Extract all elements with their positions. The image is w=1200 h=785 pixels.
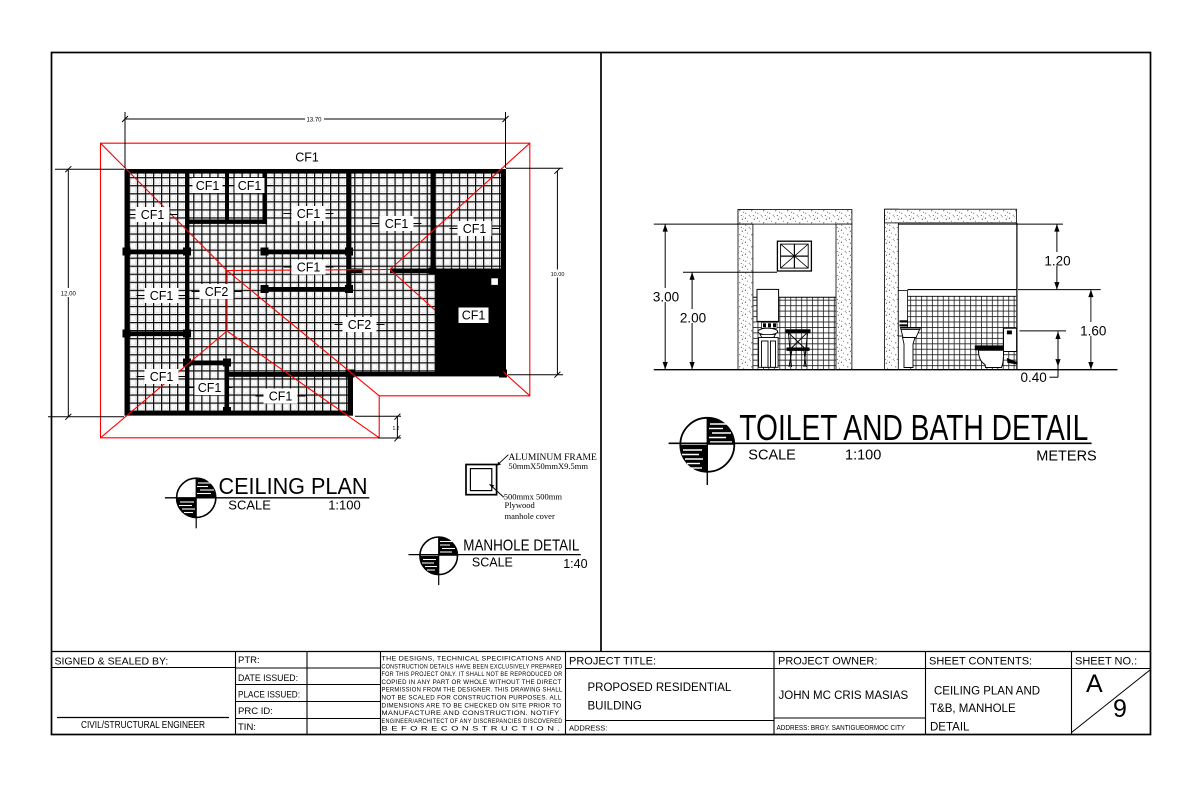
svg-text:manhole cover: manhole cover [505,511,555,521]
svg-text:CF1: CF1 [385,217,409,231]
svg-text:PTR:: PTR: [238,655,260,666]
svg-text:Plywood: Plywood [505,500,536,510]
svg-text:CF1: CF1 [150,370,174,384]
svg-text:PLACE ISSUED:: PLACE ISSUED: [238,690,300,701]
svg-text:SHEET NO.:: SHEET NO.: [1075,656,1137,668]
svg-text:9: 9 [1113,695,1127,723]
svg-text:CONSTRUCTION DETAILS HAVE BEEN: CONSTRUCTION DETAILS HAVE BEEN EXCLUSIVE… [382,663,563,670]
svg-text:CIVIL/STRUCTURAL ENGINEER: CIVIL/STRUCTURAL ENGINEER [81,720,205,731]
svg-text:DATE ISSUED:: DATE ISSUED: [238,673,298,684]
svg-text:A: A [1086,670,1103,698]
svg-text:CF2: CF2 [205,285,229,299]
svg-text:CEILING PLAN AND: CEILING PLAN AND [934,686,1040,698]
svg-text:1:40: 1:40 [563,557,587,571]
svg-text:10.00: 10.00 [551,272,565,278]
svg-text:PROJECT OWNER:: PROJECT OWNER: [778,656,877,668]
svg-text:CF1: CF1 [150,289,174,303]
svg-text:ADDRESS: BRGY. SANTIGUEORMOC C: ADDRESS: BRGY. SANTIGUEORMOC CITY [777,723,906,732]
svg-text:MANHOLE DETAIL: MANHOLE DETAIL [463,538,579,555]
svg-text:BUILDING: BUILDING [588,701,642,713]
svg-text:TOILET AND BATH DETAIL: TOILET AND BATH DETAIL [739,407,1088,448]
svg-text:MANUFACTURE AND CONSTRUCTION.: MANUFACTURE AND CONSTRUCTION. NOTIFY [382,710,560,717]
svg-text:1.2: 1.2 [393,426,400,432]
svg-text:COPIED IN ANY PART OR WHOLE WI: COPIED IN ANY PART OR WHOLE WITHOUT THE … [382,679,562,686]
svg-text:PROPOSED RESIDENTIAL: PROPOSED RESIDENTIAL [588,682,732,694]
svg-text:ENGINEER/ARCHITECT OF ANY DISC: ENGINEER/ARCHITECT OF ANY DISCREPANCIES … [382,718,563,725]
svg-text:TIN:: TIN: [238,722,256,733]
svg-text:CF1: CF1 [297,261,321,275]
svg-text:NOT BE SCALED FOR CONSTRUCTION: NOT BE SCALED FOR CONSTRUCTION PURPOSES.… [382,695,562,702]
svg-text:JOHN MC CRIS MASIAS: JOHN MC CRIS MASIAS [779,690,909,702]
svg-text:CF1: CF1 [198,381,222,395]
svg-text:CF1: CF1 [269,390,293,404]
svg-text:PROJECT TITLE:: PROJECT TITLE: [569,656,656,668]
svg-text:1:100: 1:100 [845,448,881,464]
svg-text:PRC ID:: PRC ID: [238,706,273,717]
svg-text:1:100: 1:100 [328,498,361,513]
svg-text:SCALE: SCALE [472,556,513,570]
svg-text:ADDRESS:: ADDRESS: [569,724,607,733]
svg-text:SCALE: SCALE [748,448,796,464]
svg-text:B E F O R E C O N S T R U C: B E F O R E C O N S T R U C T I O N . [382,726,561,733]
svg-text:T&B, MANHOLE: T&B, MANHOLE [930,703,1016,715]
svg-text:0.40: 0.40 [1021,370,1047,385]
svg-text:CF2: CF2 [348,318,372,332]
svg-text:2.00: 2.00 [680,311,706,326]
svg-text:3.00: 3.00 [653,290,679,305]
svg-text:METERS: METERS [1036,449,1096,465]
svg-text:CF1: CF1 [462,309,486,323]
svg-text:50mmX50mmX9.5mm: 50mmX50mmX9.5mm [508,461,588,471]
svg-text:CF1: CF1 [463,222,487,236]
svg-text:12.00: 12.00 [61,292,77,298]
svg-text:1.60: 1.60 [1080,324,1106,339]
svg-text:PERMISSION FROM THE DESIGNER.: PERMISSION FROM THE DESIGNER. THIS DRAWI… [382,687,563,694]
svg-text:FOR THIS PROJECT ONLY. IT SHAL: FOR THIS PROJECT ONLY. IT SHALL NOT BE R… [382,671,563,678]
svg-text:SHEET CONTENTS:: SHEET CONTENTS: [929,656,1032,668]
svg-text:CF1: CF1 [295,151,319,165]
svg-text:CF1: CF1 [238,179,262,193]
svg-text:1.20: 1.20 [1044,254,1070,269]
svg-text:CF1: CF1 [141,208,165,222]
svg-text:DIMENSIONS ARE TO BE CHECKED O: DIMENSIONS ARE TO BE CHECKED ON SITE PRI… [382,702,562,709]
svg-text:SCALE: SCALE [228,498,271,513]
svg-text:CF1: CF1 [297,207,321,221]
svg-text:CF1: CF1 [196,179,220,193]
svg-text:THE DESIGNS, TECHNICAL SPEC: THE DESIGNS, TECHNICAL SPECIFICATIONS AN… [382,656,562,663]
svg-text:13.70: 13.70 [306,118,322,124]
svg-text:DETAIL: DETAIL [930,722,970,734]
svg-text:SIGNED & SEALED BY:: SIGNED & SEALED BY: [55,656,169,668]
svg-text:CEILING PLAN: CEILING PLAN [219,473,368,499]
